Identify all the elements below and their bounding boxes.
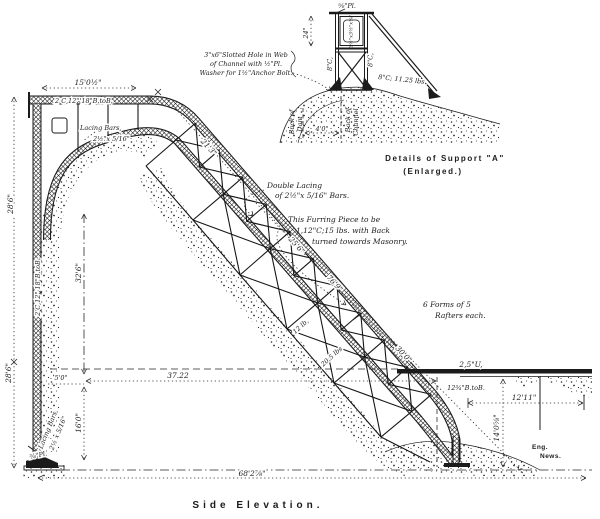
- rafters-note-1: 6 Forms of 5: [423, 300, 471, 309]
- detail-caption-line1: Details of Support "A": [385, 154, 505, 163]
- detail-angle-label: 3½"x3½"x⅜": [348, 15, 355, 48]
- deck-label-2: 12¾"B.toB.: [447, 384, 485, 392]
- dim-5-0: 5'0": [54, 374, 67, 382]
- signature-line-1: Eng.: [532, 444, 548, 451]
- rafters-note-2: Rafters each.: [434, 311, 486, 320]
- furring-note-2: 1,12"C;15 lbs. with Back: [296, 226, 390, 235]
- member-12lb-label: 12 lb,: [291, 317, 310, 335]
- member-20-5-label: 20.5 lbs: [319, 344, 345, 369]
- detail-dim-4-0: 4'0": [314, 125, 328, 133]
- lacing-top-label-2: 2½"x 5/16": [92, 135, 130, 143]
- detail-slotted-note-1: 3"x6"Slotted Hole in Web: [204, 51, 288, 59]
- top-chord-label: 2 C,12" 18"B.toB.: [54, 97, 113, 105]
- engineering-drawing: ⅝"Pl. 24" 3½"x3½"x⅜" 8"C, 8"C, 8"C; 11.2…: [0, 0, 600, 519]
- detail-back-of-dam-1: Back of: [288, 108, 296, 135]
- furring-note-3: turned towards Masonry.: [312, 237, 407, 246]
- signature-line-2: News.: [540, 453, 561, 460]
- dim-16-0: 16'0": [74, 413, 83, 433]
- detail-channel-ground-label: 8"C; 11.25 lbs.: [378, 73, 427, 86]
- dim-32-6: 32'6": [74, 263, 83, 283]
- lacing-top-label-1: Lacing Bars,: [79, 124, 122, 132]
- detail-channel-right-label: 8"C,: [367, 53, 375, 67]
- furring-note-1: This Furring Piece to be: [288, 215, 381, 224]
- detail-slotted-note-3: Washer for 1½"Anchor Bolt.: [200, 69, 293, 77]
- double-lacing-note-2: of 2½"x 5/16" Bars.: [275, 191, 349, 200]
- dim-14-0: 14'0⅝": [492, 414, 501, 441]
- detail-slotted-note-2: of Channel with ½"Pl.: [210, 60, 282, 68]
- detail-plate-top-label: ⅝"Pl.: [338, 2, 356, 10]
- double-lacing-note-1: Double Lacing: [266, 181, 322, 190]
- dim-68-2: 68'2⅞": [238, 469, 265, 478]
- drawing-title: Side Elevation.: [192, 500, 323, 511]
- detail-caption-line2: (Enlarged.): [403, 167, 462, 176]
- dim-12-11: 12'11": [512, 393, 537, 402]
- detail-back-of-channel-1: Back of: [344, 106, 352, 133]
- dim-37-22: 37.22: [167, 371, 189, 380]
- drawing-sheet: ⅝"Pl. 24" 3½"x3½"x⅜" 8"C, 8"C, 8"C; 11.2…: [0, 0, 600, 519]
- column-section-label: 2 C,12" 18"B.toB.: [34, 258, 42, 317]
- detail-back-of-channel-2: Channel: [352, 108, 360, 135]
- detail-dim-24: 24": [302, 27, 310, 39]
- detail-channel-left-label: 8"C,: [326, 57, 334, 71]
- dim-28-6-lower: 28'6": [4, 363, 13, 384]
- dim-top-length: 15'0½": [74, 78, 101, 87]
- deck-label-1: 2,5"U,: [458, 360, 482, 369]
- dim-28-6-upper: 28'6": [6, 194, 15, 215]
- detail-back-of-dam-2: Dam: [296, 116, 304, 132]
